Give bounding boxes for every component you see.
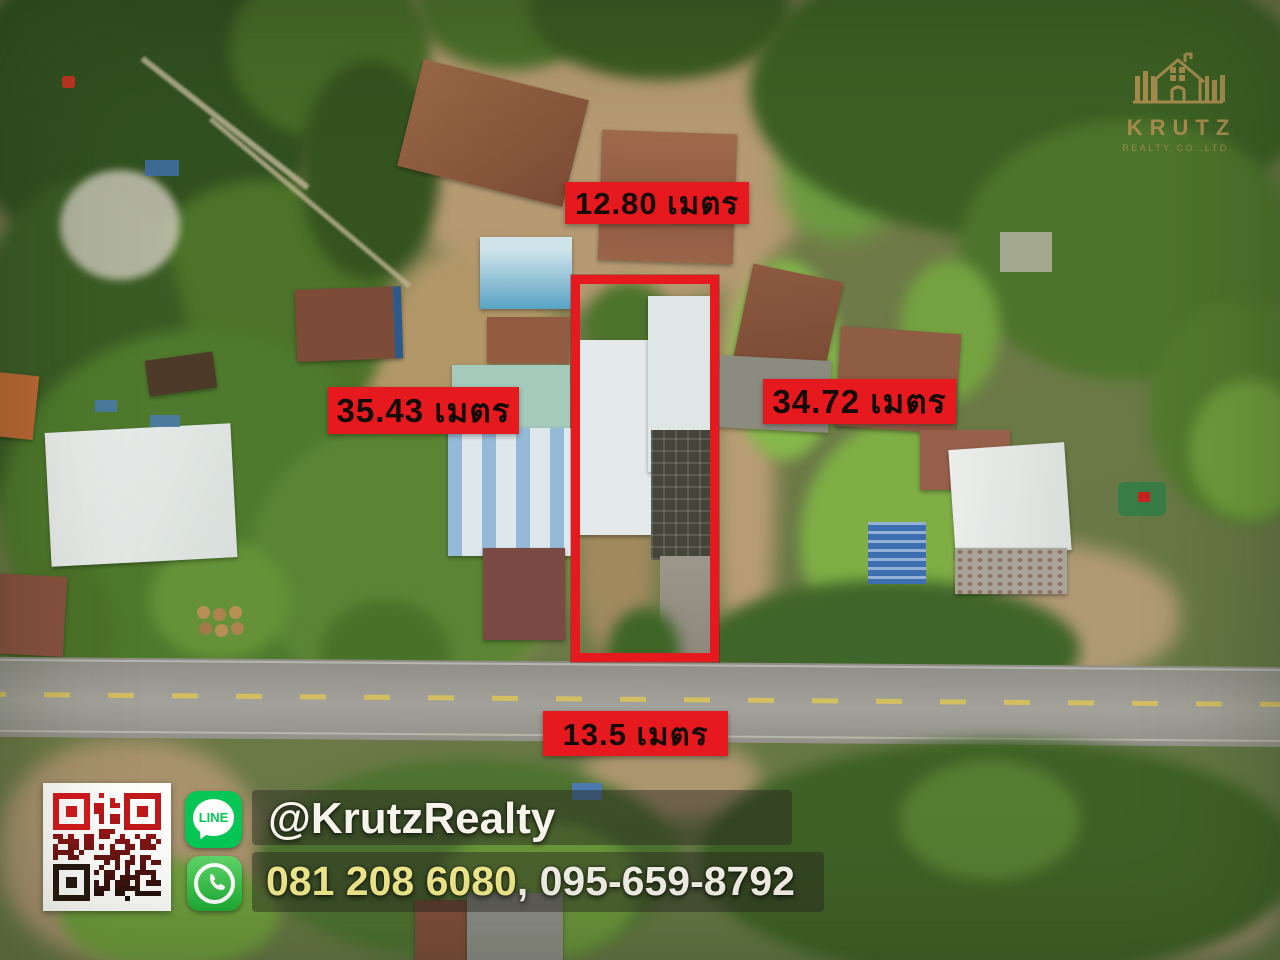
qr-code <box>43 783 171 911</box>
road-center-dashes <box>0 692 1280 707</box>
roof-maroon <box>483 548 565 640</box>
whatsapp-handset <box>187 856 242 911</box>
bush-cluster <box>900 760 1080 880</box>
whatsapp-icon <box>187 856 242 911</box>
line-id-text: @KrutzRealty <box>268 794 555 844</box>
logo-house-icon <box>1119 50 1237 108</box>
roof-rust-shed <box>295 286 403 362</box>
phone-separator: , <box>517 858 540 904</box>
debris <box>1000 232 1052 272</box>
roof-white-blue <box>448 428 572 556</box>
blue-sheet-stack <box>868 522 926 584</box>
measurement-label-top: 12.80 เมตร <box>565 182 749 224</box>
measurement-label-bottom: 13.5 เมตร <box>543 711 728 756</box>
qr-finder-top-left <box>53 793 90 830</box>
roof-rust <box>487 317 569 363</box>
phone-numbers: 081 208 6080, 095-659-8792 <box>266 858 795 905</box>
roof-white-large <box>948 442 1071 558</box>
logo: KRUTZ REALTY CO.,LTD. <box>1114 50 1242 153</box>
dead-tree <box>60 170 180 280</box>
line-bubble: LINE <box>193 799 234 836</box>
red-object <box>62 76 75 88</box>
roof-white-large <box>45 423 238 567</box>
blue-tarp <box>150 415 180 427</box>
plot-outline <box>571 275 719 662</box>
qr-finder-bottom-left <box>53 864 90 901</box>
aerial-photo: 12.80 เมตร 35.43 เมตร 34.72 เมตร 13.5 เม… <box>0 0 1280 960</box>
roof-speckled <box>955 548 1067 594</box>
plant-pots <box>197 606 210 619</box>
logo-name: KRUTZ <box>1114 115 1242 141</box>
blue-tarp <box>95 400 117 412</box>
roof-blue <box>480 237 572 309</box>
roof-orange <box>0 372 39 440</box>
red-object <box>1138 492 1150 502</box>
line-word: LINE <box>193 810 234 825</box>
blue-tarp <box>145 160 179 176</box>
measurement-label-left: 35.43 เมตร <box>328 387 519 434</box>
phone-secondary: 095-659-8792 <box>540 858 795 904</box>
qr-finder-top-right <box>124 793 161 830</box>
roof-rust-shed <box>0 573 67 657</box>
measurement-label-right: 34.72 เมตร <box>763 379 956 424</box>
logo-subtitle: REALTY CO.,LTD. <box>1114 143 1242 153</box>
phone-primary: 081 208 6080 <box>266 858 517 904</box>
line-icon: LINE <box>185 791 242 848</box>
